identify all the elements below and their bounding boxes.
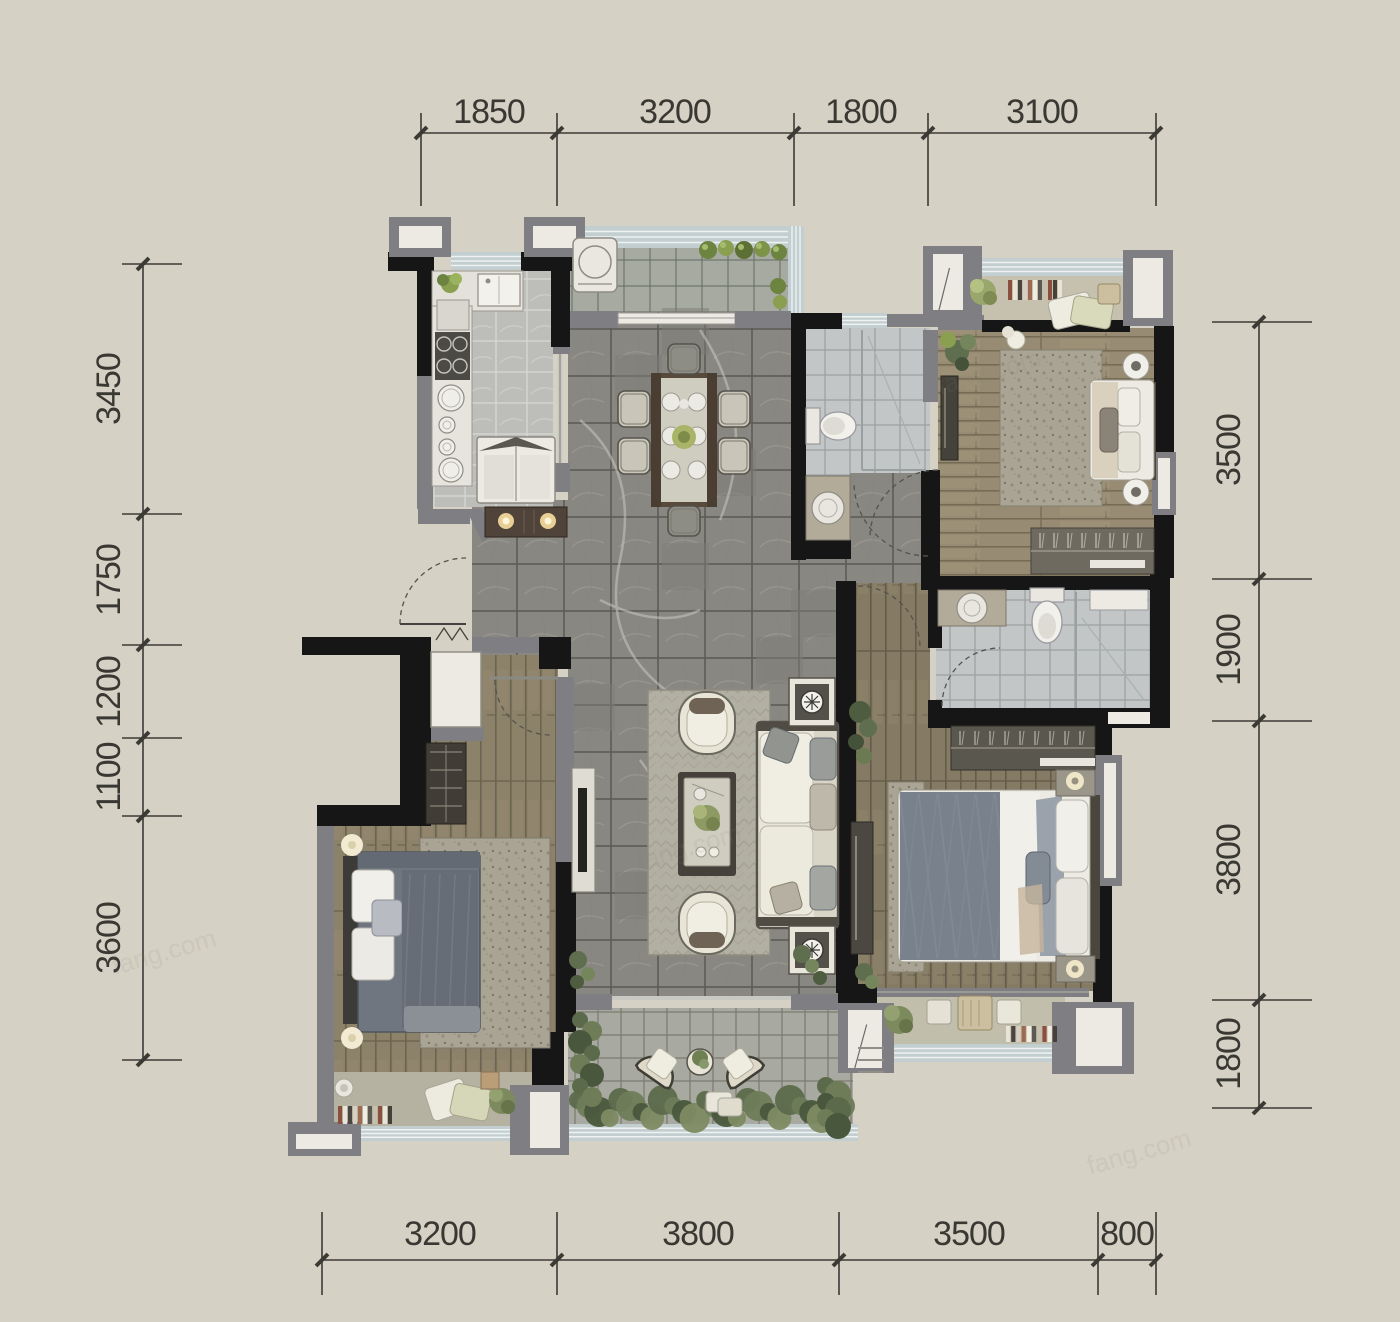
svg-text:800: 800 [1100, 1215, 1154, 1253]
svg-text:3500: 3500 [933, 1215, 1005, 1253]
svg-text:1800: 1800 [1210, 1018, 1248, 1090]
svg-text:3500: 3500 [1210, 414, 1248, 486]
svg-text:1850: 1850 [453, 93, 525, 131]
svg-text:1200: 1200 [90, 656, 128, 728]
svg-text:3800: 3800 [662, 1215, 734, 1253]
svg-text:3200: 3200 [639, 93, 711, 131]
svg-text:1900: 1900 [1210, 614, 1248, 686]
svg-text:1750: 1750 [90, 544, 128, 616]
svg-text:3100: 3100 [1006, 93, 1078, 131]
svg-text:3450: 3450 [90, 353, 128, 425]
svg-text:3800: 3800 [1210, 824, 1248, 896]
svg-text:1800: 1800 [825, 93, 897, 131]
svg-text:3200: 3200 [404, 1215, 476, 1253]
svg-text:1100: 1100 [90, 742, 128, 811]
